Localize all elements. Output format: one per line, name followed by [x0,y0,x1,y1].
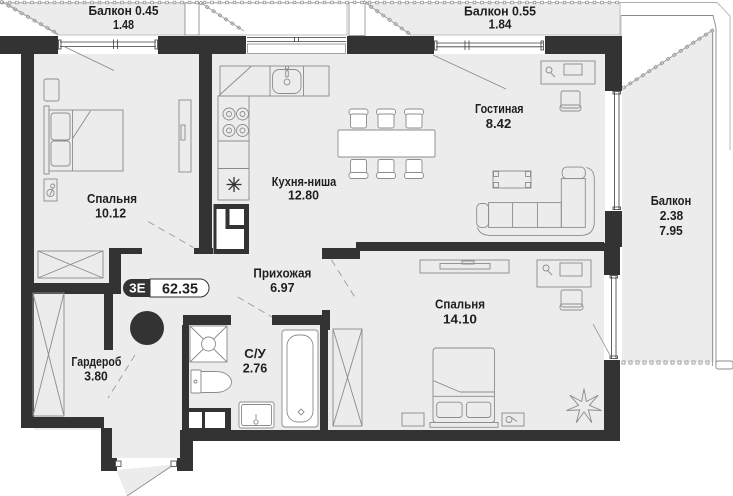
svg-text:С/У: С/У [244,346,266,361]
svg-text:12.80: 12.80 [288,188,319,203]
svg-text:14.10: 14.10 [443,312,477,327]
svg-text:1.84: 1.84 [489,17,513,32]
svg-text:62.35: 62.35 [162,281,198,298]
svg-text:1.48: 1.48 [113,17,134,32]
svg-text:7.95: 7.95 [659,223,683,238]
svg-text:6.97: 6.97 [270,280,295,295]
svg-text:Спальня: Спальня [435,297,485,312]
svg-text:Гостиная: Гостиная [475,101,524,116]
svg-text:3Е: 3Е [129,281,146,296]
svg-text:Гардероб: Гардероб [71,354,121,369]
svg-text:3.80: 3.80 [84,369,108,384]
svg-text:Балкон 0.45: Балкон 0.45 [89,3,159,18]
svg-text:Балкон: Балкон [651,193,692,208]
svg-text:Спальня: Спальня [87,191,137,206]
svg-text:8.42: 8.42 [486,116,512,131]
svg-text:10.12: 10.12 [95,206,126,221]
svg-text:Прихожая: Прихожая [253,265,311,280]
svg-text:2.76: 2.76 [243,361,268,376]
svg-text:2.38: 2.38 [660,208,684,223]
